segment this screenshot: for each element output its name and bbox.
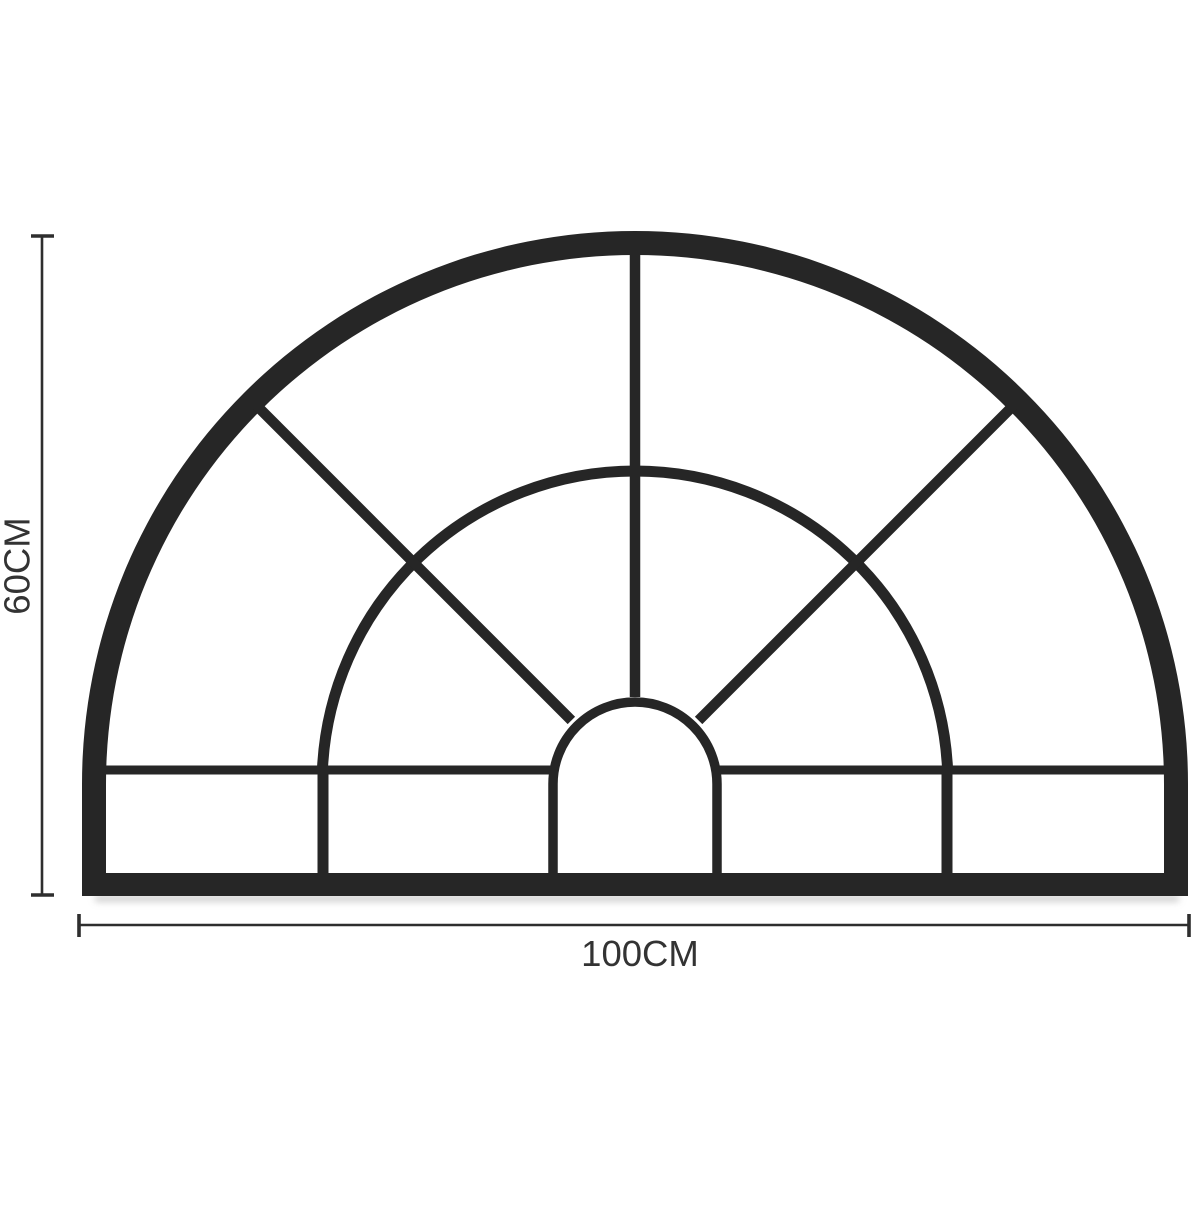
svg-text:60CM: 60CM (0, 517, 38, 614)
svg-text:100CM: 100CM (581, 933, 699, 974)
